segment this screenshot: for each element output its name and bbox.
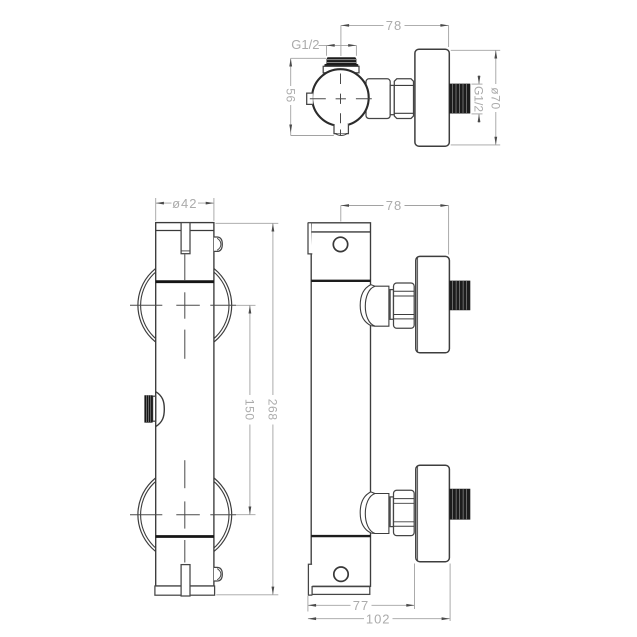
svg-text:78: 78 [386, 198, 402, 213]
svg-text:G1/2: G1/2 [472, 86, 486, 112]
svg-text:ø70: ø70 [489, 87, 503, 109]
svg-text:ø42: ø42 [172, 196, 197, 211]
svg-text:268: 268 [266, 399, 280, 421]
svg-text:102: 102 [366, 611, 391, 626]
svg-text:78: 78 [386, 18, 402, 33]
svg-text:150: 150 [243, 399, 257, 421]
svg-text:56: 56 [283, 88, 297, 103]
svg-text:G1/2: G1/2 [291, 37, 319, 52]
